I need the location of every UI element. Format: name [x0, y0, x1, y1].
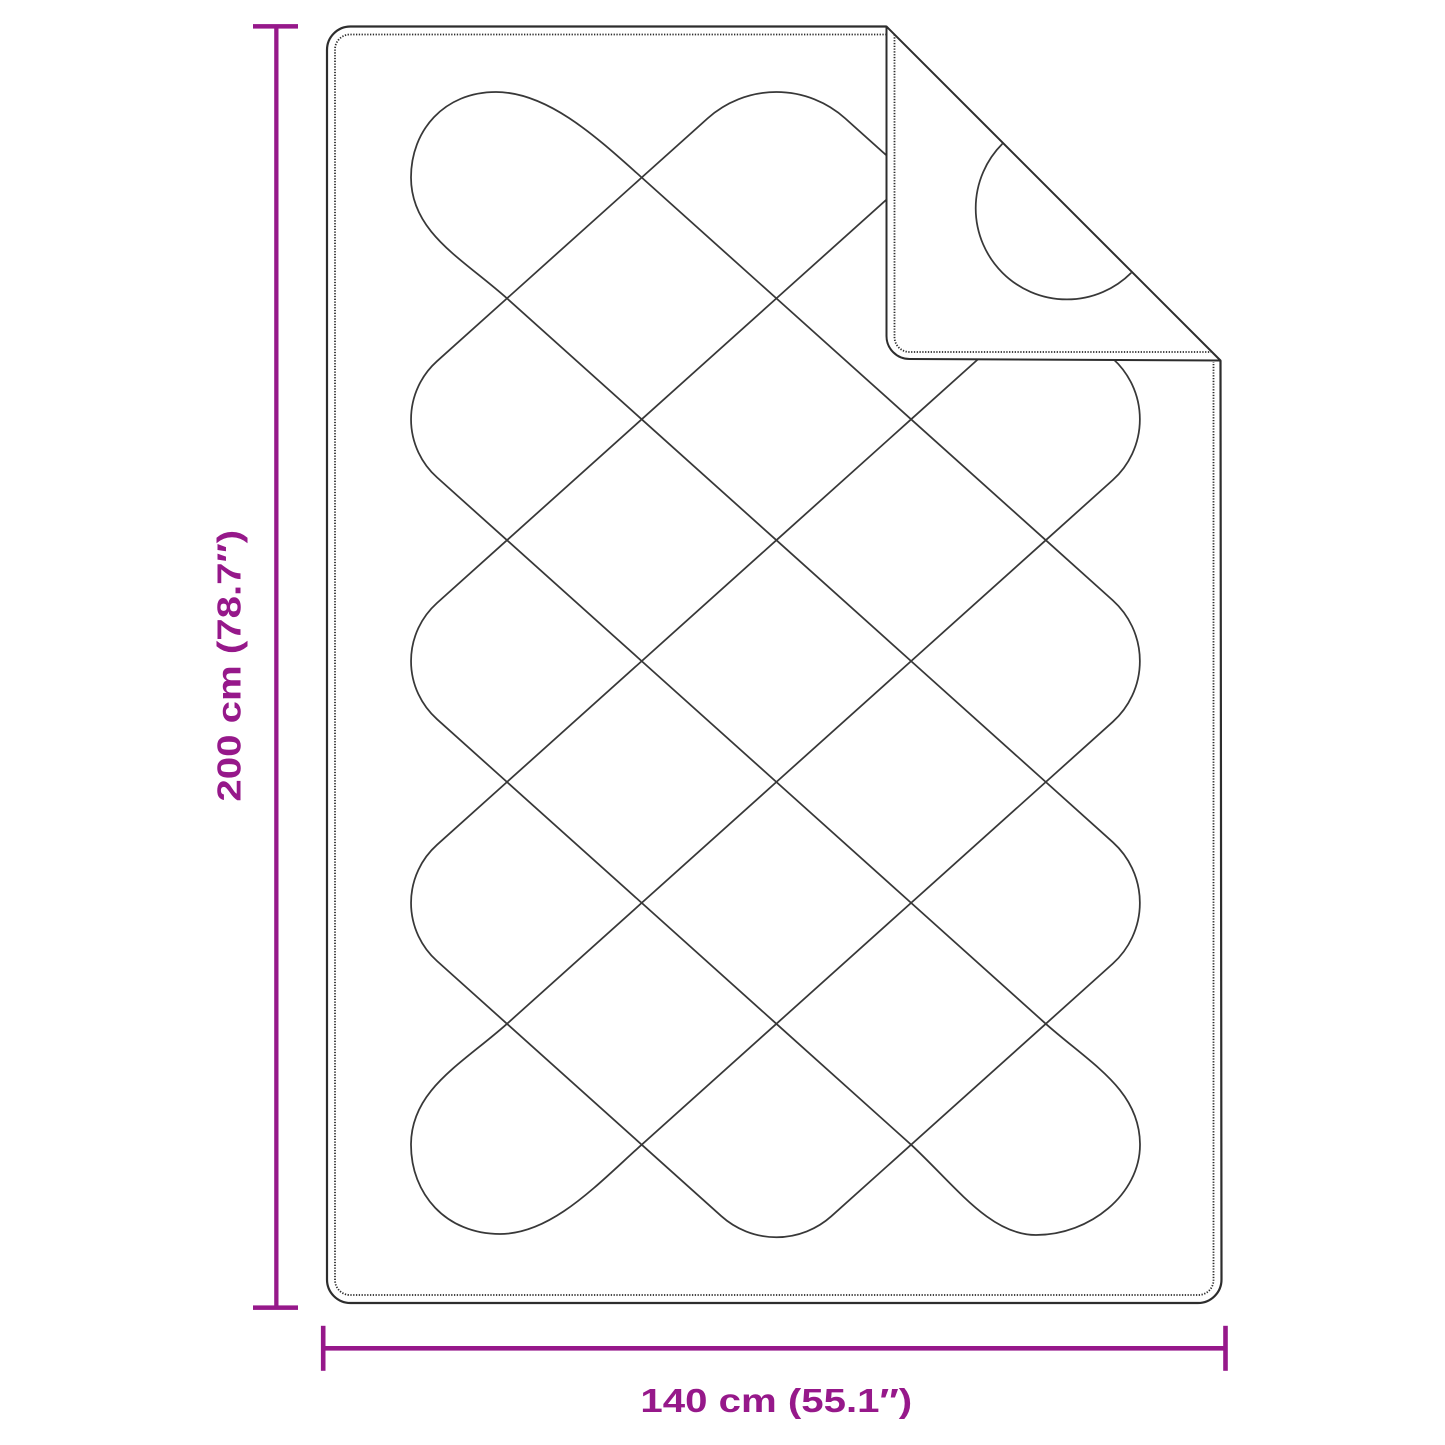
- svg-text:140 cm (55.1″): 140 cm (55.1″): [640, 1382, 912, 1419]
- svg-text:200 cm (78.7″): 200 cm (78.7″): [211, 530, 248, 802]
